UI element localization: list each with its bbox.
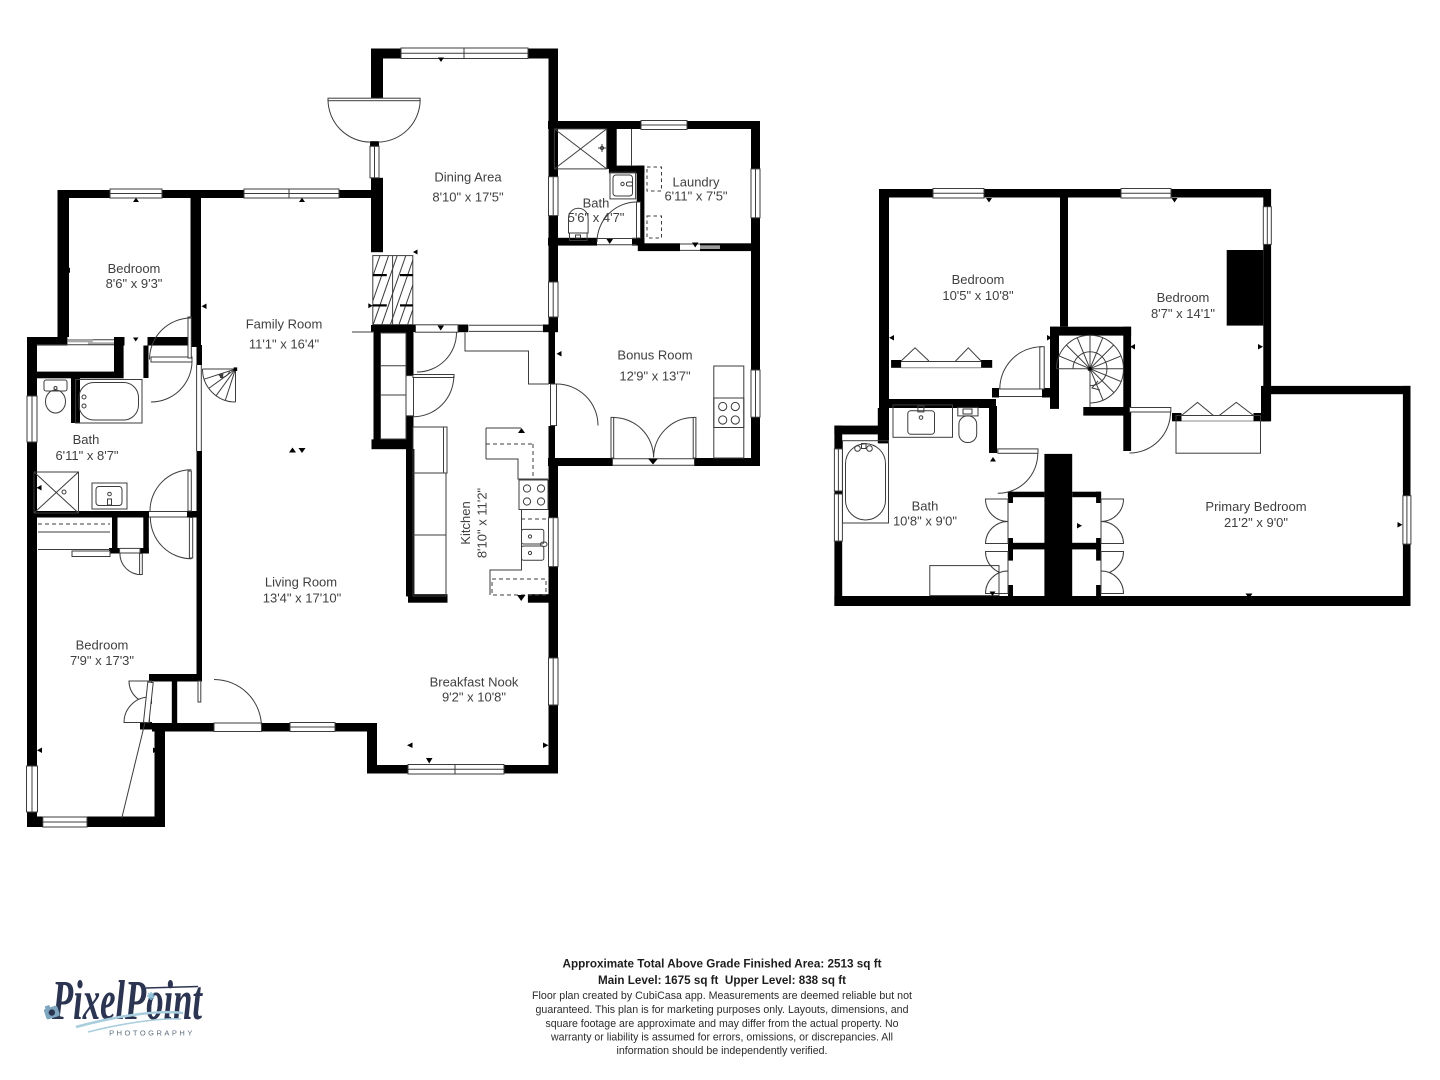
- svg-text:Bedroom: Bedroom: [76, 638, 129, 653]
- svg-text:Bedroom: Bedroom: [952, 272, 1005, 287]
- svg-text:Bedroom: Bedroom: [108, 261, 161, 276]
- svg-text:Bedroom: Bedroom: [1157, 290, 1210, 305]
- svg-text:Primary Bedroom: Primary Bedroom: [1205, 499, 1306, 514]
- svg-text:7'9" x 17'3": 7'9" x 17'3": [70, 653, 134, 668]
- svg-text:Kitchen: Kitchen: [458, 501, 473, 544]
- svg-text:Bonus Room: Bonus Room: [617, 348, 692, 363]
- svg-text:8'6" x 9'3": 8'6" x 9'3": [106, 276, 163, 291]
- svg-text:8'10" x 11'2": 8'10" x 11'2": [475, 487, 490, 558]
- svg-text:8'10" x 17'5": 8'10" x 17'5": [432, 190, 504, 205]
- svg-text:6'11" x 7'5": 6'11" x 7'5": [664, 189, 727, 204]
- svg-text:Approximate Total Above Grade: Approximate Total Above Grade Finished A…: [563, 957, 882, 971]
- svg-text:Bath: Bath: [73, 432, 100, 447]
- svg-text:Bath: Bath: [583, 196, 610, 211]
- svg-text:guaranteed. This plan is for m: guaranteed. This plan is for marketing p…: [536, 1004, 909, 1016]
- svg-text:square footage are approximate: square footage are approximate and may d…: [546, 1018, 899, 1030]
- svg-text:13'4" x 17'10": 13'4" x 17'10": [263, 591, 342, 606]
- svg-text:PHOTOGRAPHY: PHOTOGRAPHY: [109, 1029, 195, 1038]
- svg-text:Dining Area: Dining Area: [434, 170, 502, 185]
- svg-text:Bath: Bath: [912, 499, 939, 514]
- svg-text:6'11" x 8'7": 6'11" x 8'7": [55, 448, 118, 463]
- svg-text:11'1" x 16'4": 11'1" x 16'4": [249, 337, 320, 352]
- svg-text:5'6" x 4'7": 5'6" x 4'7": [568, 210, 625, 225]
- svg-text:warranty or liability is assum: warranty or liability is assumed for err…: [550, 1032, 893, 1044]
- svg-text:information should be independ: information should be independently veri…: [617, 1045, 828, 1057]
- svg-text:8'7" x 14'1": 8'7" x 14'1": [1151, 306, 1215, 321]
- svg-text:10'8" x 9'0": 10'8" x 9'0": [893, 514, 957, 529]
- svg-text:Living Room: Living Room: [265, 575, 337, 590]
- svg-text:Floor plan created by CubiCasa: Floor plan created by CubiCasa app. Meas…: [532, 990, 912, 1002]
- svg-text:9'2" x 10'8": 9'2" x 10'8": [442, 690, 506, 705]
- svg-text:Laundry: Laundry: [673, 175, 720, 190]
- svg-text:21'2" x 9'0": 21'2" x 9'0": [1224, 515, 1288, 530]
- svg-text:Main Level: 1675 sq ft Upper: Main Level: 1675 sq ft Upper Level: 838 …: [598, 973, 846, 987]
- svg-text:PixelPoint: PixelPoint: [51, 970, 203, 1032]
- svg-text:Family Room: Family Room: [246, 317, 323, 332]
- svg-text:Breakfast Nook: Breakfast Nook: [430, 675, 519, 690]
- svg-text:10'5" x 10'8": 10'5" x 10'8": [942, 288, 1014, 303]
- svg-text:12'9" x 13'7": 12'9" x 13'7": [619, 369, 691, 384]
